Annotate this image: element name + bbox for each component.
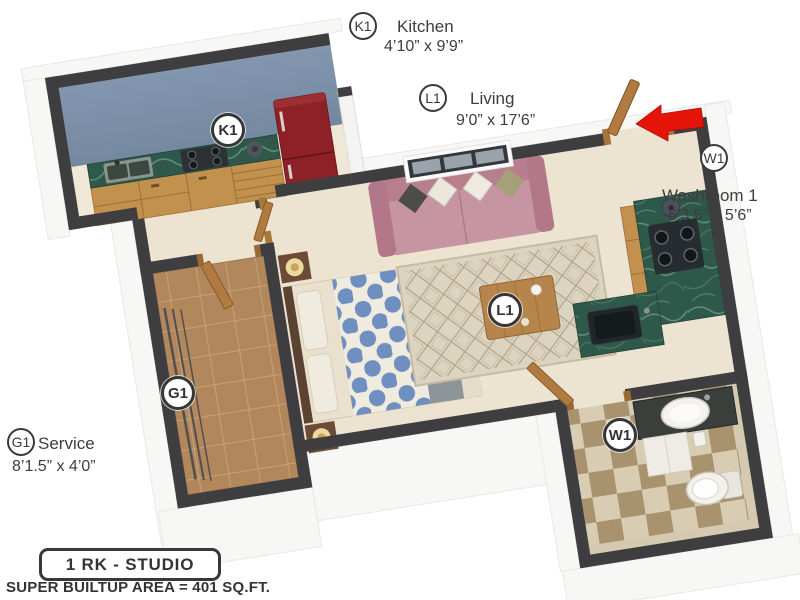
living-marker: L1 [488, 293, 522, 327]
service-code-badge: G1 [7, 428, 35, 456]
washroom-marker: W1 [603, 418, 637, 452]
kitchen-name: Kitchen [397, 17, 454, 37]
area-note: SUPER BUILTUP AREA = 401 SQ.FT. [6, 579, 270, 596]
service-marker: G1 [161, 376, 195, 410]
floor-plan-drawing [0, 0, 800, 600]
living-name: Living [470, 89, 514, 109]
washroom-dimensions: 6’3.5” x 5’6” [668, 207, 752, 225]
floor-plan-page: K1 L1 W1 G1 K1 Kitchen 4’10” x 9’9” L1 L… [0, 0, 800, 600]
washroom-code-badge: W1 [700, 144, 728, 172]
service-name: Service [38, 434, 95, 454]
plan-type-box: 1 RK - STUDIO [39, 548, 221, 581]
kitchen-marker: K1 [211, 113, 245, 147]
living-dimensions: 9’0” x 17’6” [456, 112, 535, 130]
kitchen-code-badge: K1 [349, 12, 377, 40]
washroom-name: Washroom 1 [662, 186, 758, 206]
hob [648, 218, 705, 275]
kitchen-dimensions: 4’10” x 9’9” [384, 38, 463, 56]
service-dimensions: 8’1.5” x 4’0” [12, 458, 96, 476]
toilet-paper-holder [693, 431, 707, 447]
living-code-badge: L1 [419, 84, 447, 112]
